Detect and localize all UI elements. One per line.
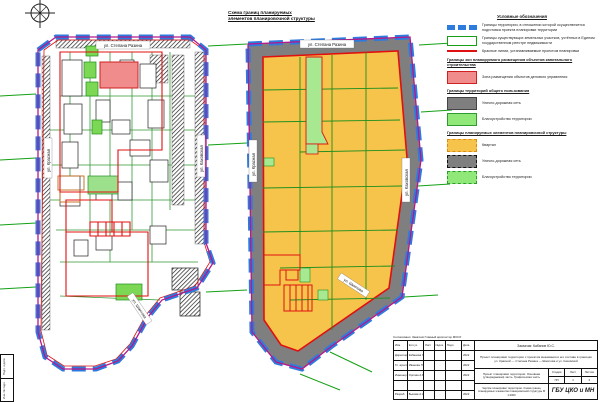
legend-item-landscaping: Благоустройство территории <box>447 113 597 126</box>
legend-item-label: Улично-дорожная сеть <box>482 101 521 106</box>
customer-line: Заказчик: Кабанов Ю.С. <box>475 341 597 351</box>
side-stamp-text: Инв. № подл. <box>2 381 6 398</box>
legend-item-red-lines: Красные линии, устанавливаемые проектом … <box>447 49 597 54</box>
legend-item-road-network-planned: Улично-дорожная сеть <box>447 155 597 168</box>
legend-item-label: Границы существующих земельных участков,… <box>482 36 597 45</box>
approval-line: Согласовано: Заказчик Главный архитектор… <box>393 336 598 339</box>
legend-item-landscaping-planned: Благоустройство территории <box>447 171 597 184</box>
dok-cell <box>435 361 446 370</box>
legend-subheader-planning-elements: Границы планируемых элементов планировоч… <box>447 131 597 136</box>
legend-item-label: Зона размещения объектов делового управл… <box>482 75 567 80</box>
signature-row: Директор Кабанова Г.В. 2022 <box>394 351 474 361</box>
pink-rect-swatch <box>447 71 477 84</box>
name-cell <box>408 381 424 390</box>
compass-rose-icon <box>25 0 55 28</box>
sheet-title-line2: элементов планировочной структуры <box>228 16 328 22</box>
date-cell: 2022 <box>462 361 474 370</box>
svg-text:ул. Красная: ул. Красная <box>251 153 256 176</box>
list-cell <box>424 361 434 370</box>
date-cell <box>462 381 474 390</box>
col-podp: Подп. <box>446 341 462 350</box>
dok-cell <box>435 381 446 390</box>
right-map-street-label-top: ул. Степана Разина <box>300 40 354 48</box>
name-cell: Иванова П.В. <box>408 361 424 370</box>
green-rect-swatch <box>447 113 477 126</box>
role-cell: Директор <box>394 351 408 360</box>
sign-cell <box>446 361 462 370</box>
signature-header-row: Изм. Кол.уч. Лист №док. Подп. Дата <box>394 341 474 351</box>
svg-text:ул. Каховская: ул. Каховская <box>404 169 409 196</box>
sheets-value: 4 <box>582 377 597 384</box>
signature-table: Изм. Кол.уч. Лист №док. Подп. Дата Дирек… <box>394 341 475 399</box>
col-dok: №док. <box>435 341 446 350</box>
legend-item-label: Благоустройство территории <box>482 175 532 180</box>
legend-item-planning-boundary: Границы территории, в отношении которой … <box>447 23 597 32</box>
stage-label: Стадия <box>549 369 565 376</box>
organization-name: ГБУ ЦКО и МН <box>549 384 597 399</box>
legend-item-label: Красные линии, устанавливаемые проектом … <box>482 49 579 54</box>
legend-subheader-capital-construction: Границы зон планируемого размещения объе… <box>447 58 597 68</box>
col-list: Лист <box>424 341 434 350</box>
col-izm: Изм. <box>394 341 408 350</box>
gray-dashed-rect-swatch <box>447 155 477 168</box>
list-cell <box>424 351 434 360</box>
sheet-title: Схема границ планируемых элементов плани… <box>228 10 328 22</box>
legend-panel: Условные обозначения Границы территории,… <box>447 14 597 187</box>
legend-item-business-zone: Зона размещения объектов делового управл… <box>447 71 597 84</box>
svg-text:ул. Красная: ул. Красная <box>46 149 51 172</box>
svg-text:ул. Степана Разина: ул. Степана Разина <box>104 43 143 48</box>
role-cell: Гл. архит. <box>394 361 408 370</box>
dok-cell <box>435 391 446 400</box>
side-stamp-cell: Инв. № подл. <box>1 379 13 402</box>
legend-header: Условные обозначения <box>447 14 597 19</box>
left-map-street-label-left: ул. Красная <box>44 138 52 178</box>
green-outline-rect-swatch <box>447 36 477 46</box>
legend-item-road-network: Улично-дорожная сеть <box>447 97 597 110</box>
name-cell: Быкова А.А. <box>408 391 424 400</box>
svg-text:ул. Степана Разина: ул. Степана Разина <box>308 42 347 47</box>
signature-row: Инженер Орлова А.В. 2022 <box>394 371 474 381</box>
legend-subheader-public-territories: Границы территорий общего пользования <box>447 89 597 94</box>
yellow-dashed-rect-swatch <box>447 139 477 152</box>
title-block-table: Изм. Кол.уч. Лист №док. Подп. Дата Дирек… <box>393 340 598 400</box>
signature-row: Гл. архит. Иванова П.В. 2022 <box>394 361 474 371</box>
dok-cell <box>435 351 446 360</box>
col-koluch: Кол.уч. <box>408 341 424 350</box>
sign-cell <box>446 391 462 400</box>
side-stamp-cell: Подп. и дата <box>1 355 13 379</box>
blue-dashed-line-swatch <box>447 25 477 30</box>
legend-item-land-plots: Границы существующих земельных участков,… <box>447 36 597 46</box>
name-cell: Орлова А.В. <box>408 371 424 380</box>
legend-item-label: Границы территории, в отношении которой … <box>482 23 597 32</box>
list-cell <box>424 391 434 400</box>
right-map-street-label-right: ул. Каховская <box>402 158 410 202</box>
sheets-label: Листов <box>582 369 597 376</box>
right-map-street-label-left: ул. Красная <box>249 140 257 182</box>
svg-text:ул. Шмитова: ул. Шмитова <box>131 299 147 320</box>
stage-value: ПП <box>549 377 565 384</box>
role-cell: Разраб. <box>394 391 408 400</box>
dok-cell <box>435 371 446 380</box>
red-line-swatch <box>447 50 477 52</box>
project-name: Проект планировки территории с проектом … <box>475 351 597 369</box>
role-cell <box>394 381 408 390</box>
legend-item-label: Улично-дорожная сеть <box>482 159 521 164</box>
svg-text:ул. Каховская: ул. Каховская <box>199 145 204 172</box>
side-stamp: Подп. и дата Инв. № подл. <box>0 354 14 402</box>
title-block-right: Заказчик: Кабанов Ю.С. Проект планировки… <box>475 341 597 399</box>
list-cell <box>424 371 434 380</box>
signature-row <box>394 381 474 391</box>
sheet-value: 1 <box>565 377 581 384</box>
gray-rect-swatch <box>447 97 477 110</box>
left-map-panel: ул. Степана Разина ул. Красная ул. Кахов… <box>38 37 213 369</box>
legend-item-quarter: Квартал <box>447 139 597 152</box>
sign-cell <box>446 371 462 380</box>
sheet-caption: Чертёж планировки территории. Схема гран… <box>475 384 549 399</box>
left-map-street-label-right: ул. Каховская <box>197 135 205 177</box>
date-cell: 2022 <box>462 351 474 360</box>
legend-item-label: Квартал <box>482 143 496 148</box>
document-title: Проект планировки территории. Основная (… <box>475 369 549 383</box>
left-map-business-zone <box>100 62 138 88</box>
green-dashed-rect-swatch <box>447 171 477 184</box>
sign-cell <box>446 381 462 390</box>
list-cell <box>424 381 434 390</box>
col-data: Дата <box>462 341 474 350</box>
sheet-label: Лист <box>565 369 581 376</box>
right-map-panel: ул. Степана Разина ул. Красная ул. Кахов… <box>248 37 421 369</box>
stage-table: Стадия Лист Листов ПП 1 4 <box>549 369 597 383</box>
side-stamp-text: Подп. и дата <box>2 359 6 375</box>
name-cell: Кабанова Г.В. <box>408 351 424 360</box>
sign-cell <box>446 351 462 360</box>
left-map-street-label-top: ул. Степана Разина <box>96 41 150 49</box>
role-cell: Инженер <box>394 371 408 380</box>
signature-row: Разраб. Быкова А.А. 2022 <box>394 391 474 400</box>
date-cell: 2022 <box>462 371 474 380</box>
legend-item-label: Благоустройство территории <box>482 117 532 122</box>
title-block: Согласовано: Заказчик Главный архитектор… <box>393 336 598 400</box>
date-cell: 2022 <box>462 391 474 400</box>
